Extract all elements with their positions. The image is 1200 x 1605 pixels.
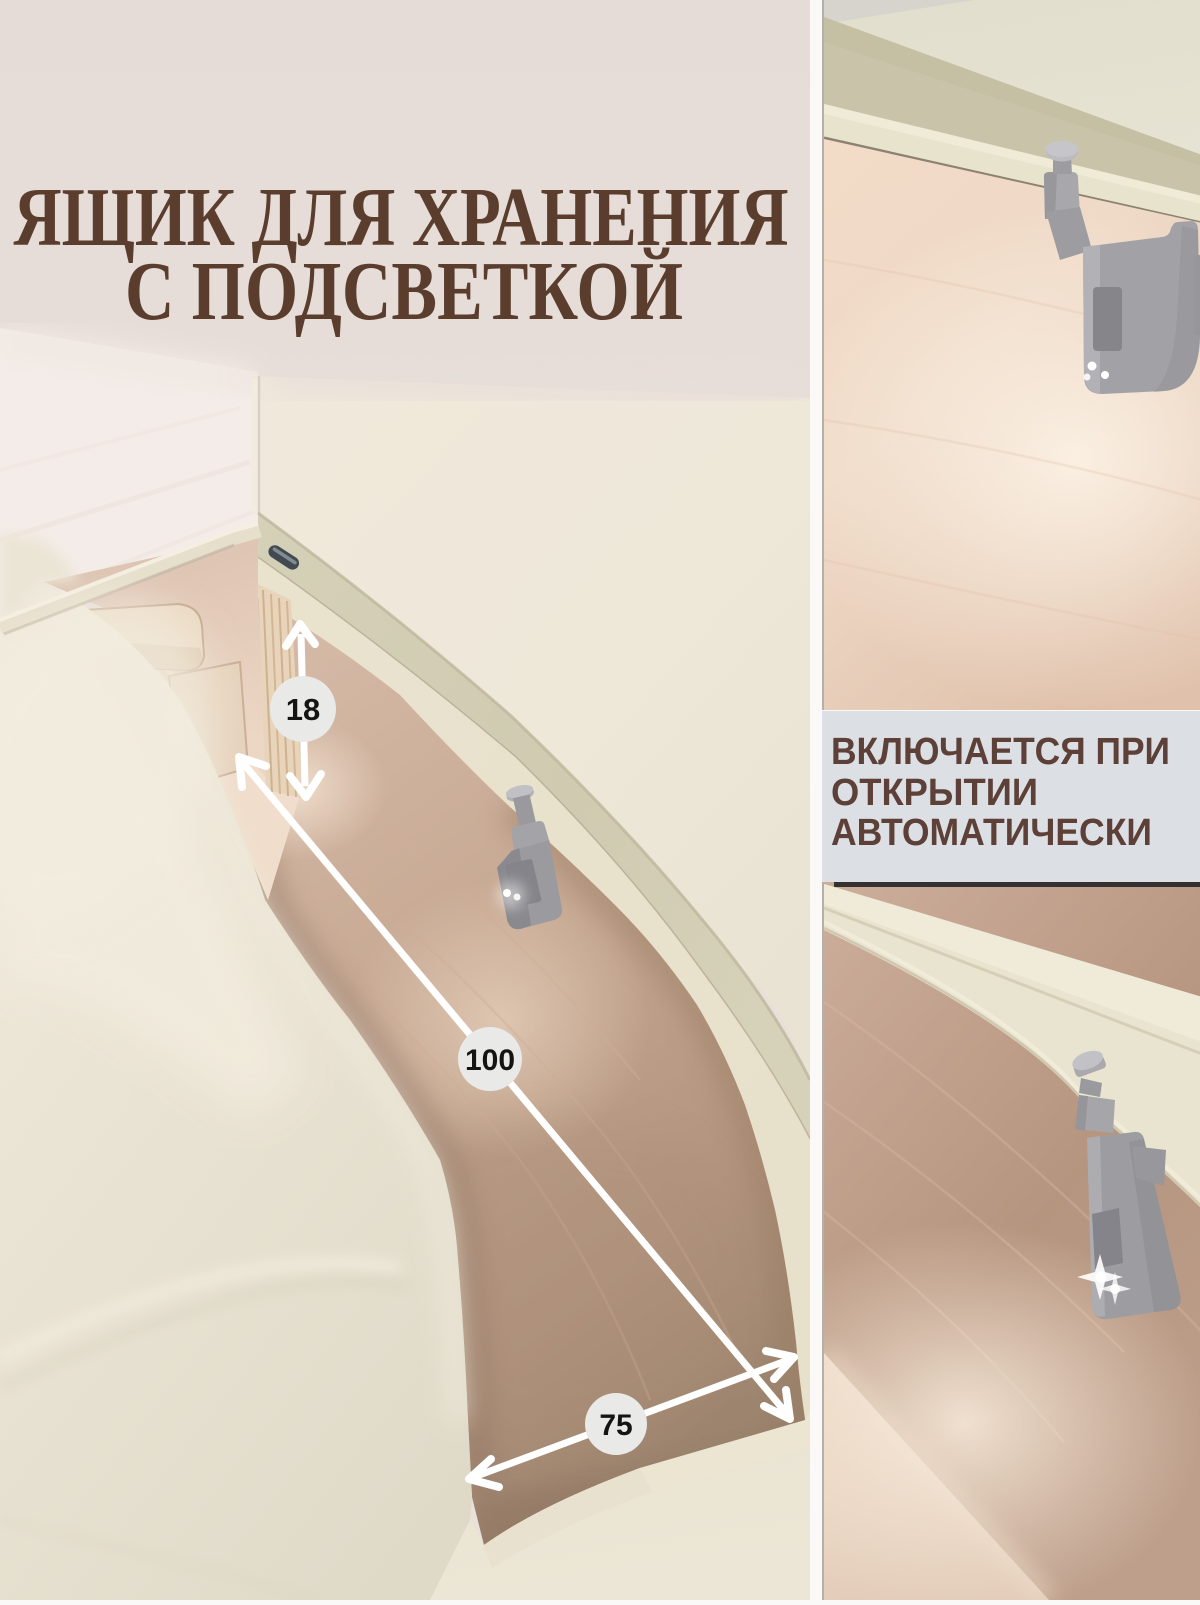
svg-text:С ПОДСВЕТКОЙ: С ПОДСВЕТКОЙ (125, 245, 683, 338)
svg-text:АВТОМАТИЧЕСКИ: АВТОМАТИЧЕСКИ (831, 812, 1152, 854)
svg-text:18: 18 (286, 692, 320, 727)
svg-text:ВКЛЮЧАЕТСЯ ПРИ: ВКЛЮЧАЕТСЯ ПРИ (831, 731, 1170, 773)
svg-text:100: 100 (465, 1044, 515, 1077)
svg-text:ОТКРЫТИИ: ОТКРЫТИИ (831, 772, 1038, 814)
svg-text:75: 75 (599, 1409, 632, 1442)
